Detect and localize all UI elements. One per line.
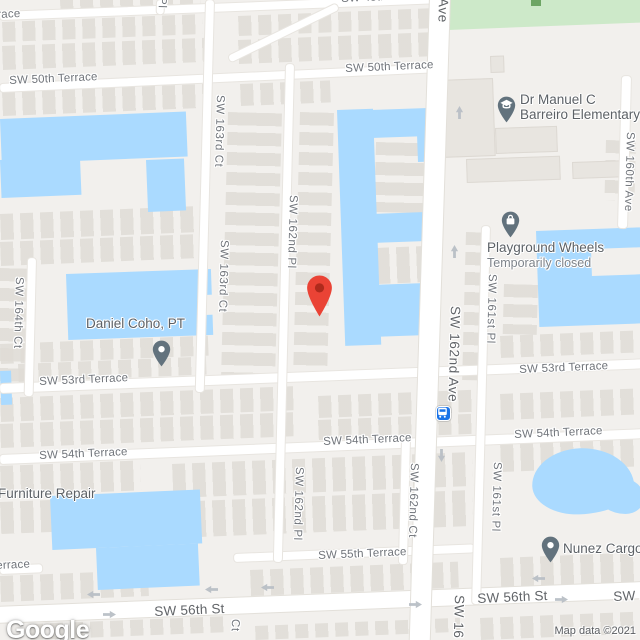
- poi-school-label-line: Dr Manuel C: [520, 92, 640, 107]
- poi-layer: Dr Manuel CBarreiro ElementaryPlayground…: [0, 0, 640, 640]
- poi-nunez-cargo-label-line: Nunez Cargo: [563, 541, 640, 556]
- transit-station[interactable]: [436, 406, 451, 421]
- poi-furniture-repair-label-line: Furniture Repair: [0, 486, 96, 501]
- poi-playground-wheels-label-line: Playground Wheels: [487, 240, 604, 255]
- map-canvas[interactable]: raceSW 48th TerraceSW 50th TerraceSW 50t…: [0, 0, 640, 640]
- poi-furniture-repair-label[interactable]: Furniture Repair: [0, 486, 96, 501]
- poi-nunez-cargo-label[interactable]: Nunez Cargo: [563, 541, 640, 556]
- map-attribution: Map data ©2021: [555, 625, 637, 637]
- poi-school-label[interactable]: Dr Manuel CBarreiro Elementary: [520, 92, 640, 122]
- poi-playground-wheels-label[interactable]: Playground WheelsTemporarily closed: [487, 240, 604, 271]
- poi-school-label-line: Barreiro Elementary: [520, 107, 640, 122]
- poi-daniel-coho-pt-label-line: Daniel Coho, PT: [86, 316, 185, 331]
- google-logo[interactable]: Google: [6, 616, 89, 640]
- poi-playground-wheels-status: Temporarily closed: [487, 256, 604, 271]
- poi-daniel-coho-pt-label[interactable]: Daniel Coho, PT: [86, 316, 185, 331]
